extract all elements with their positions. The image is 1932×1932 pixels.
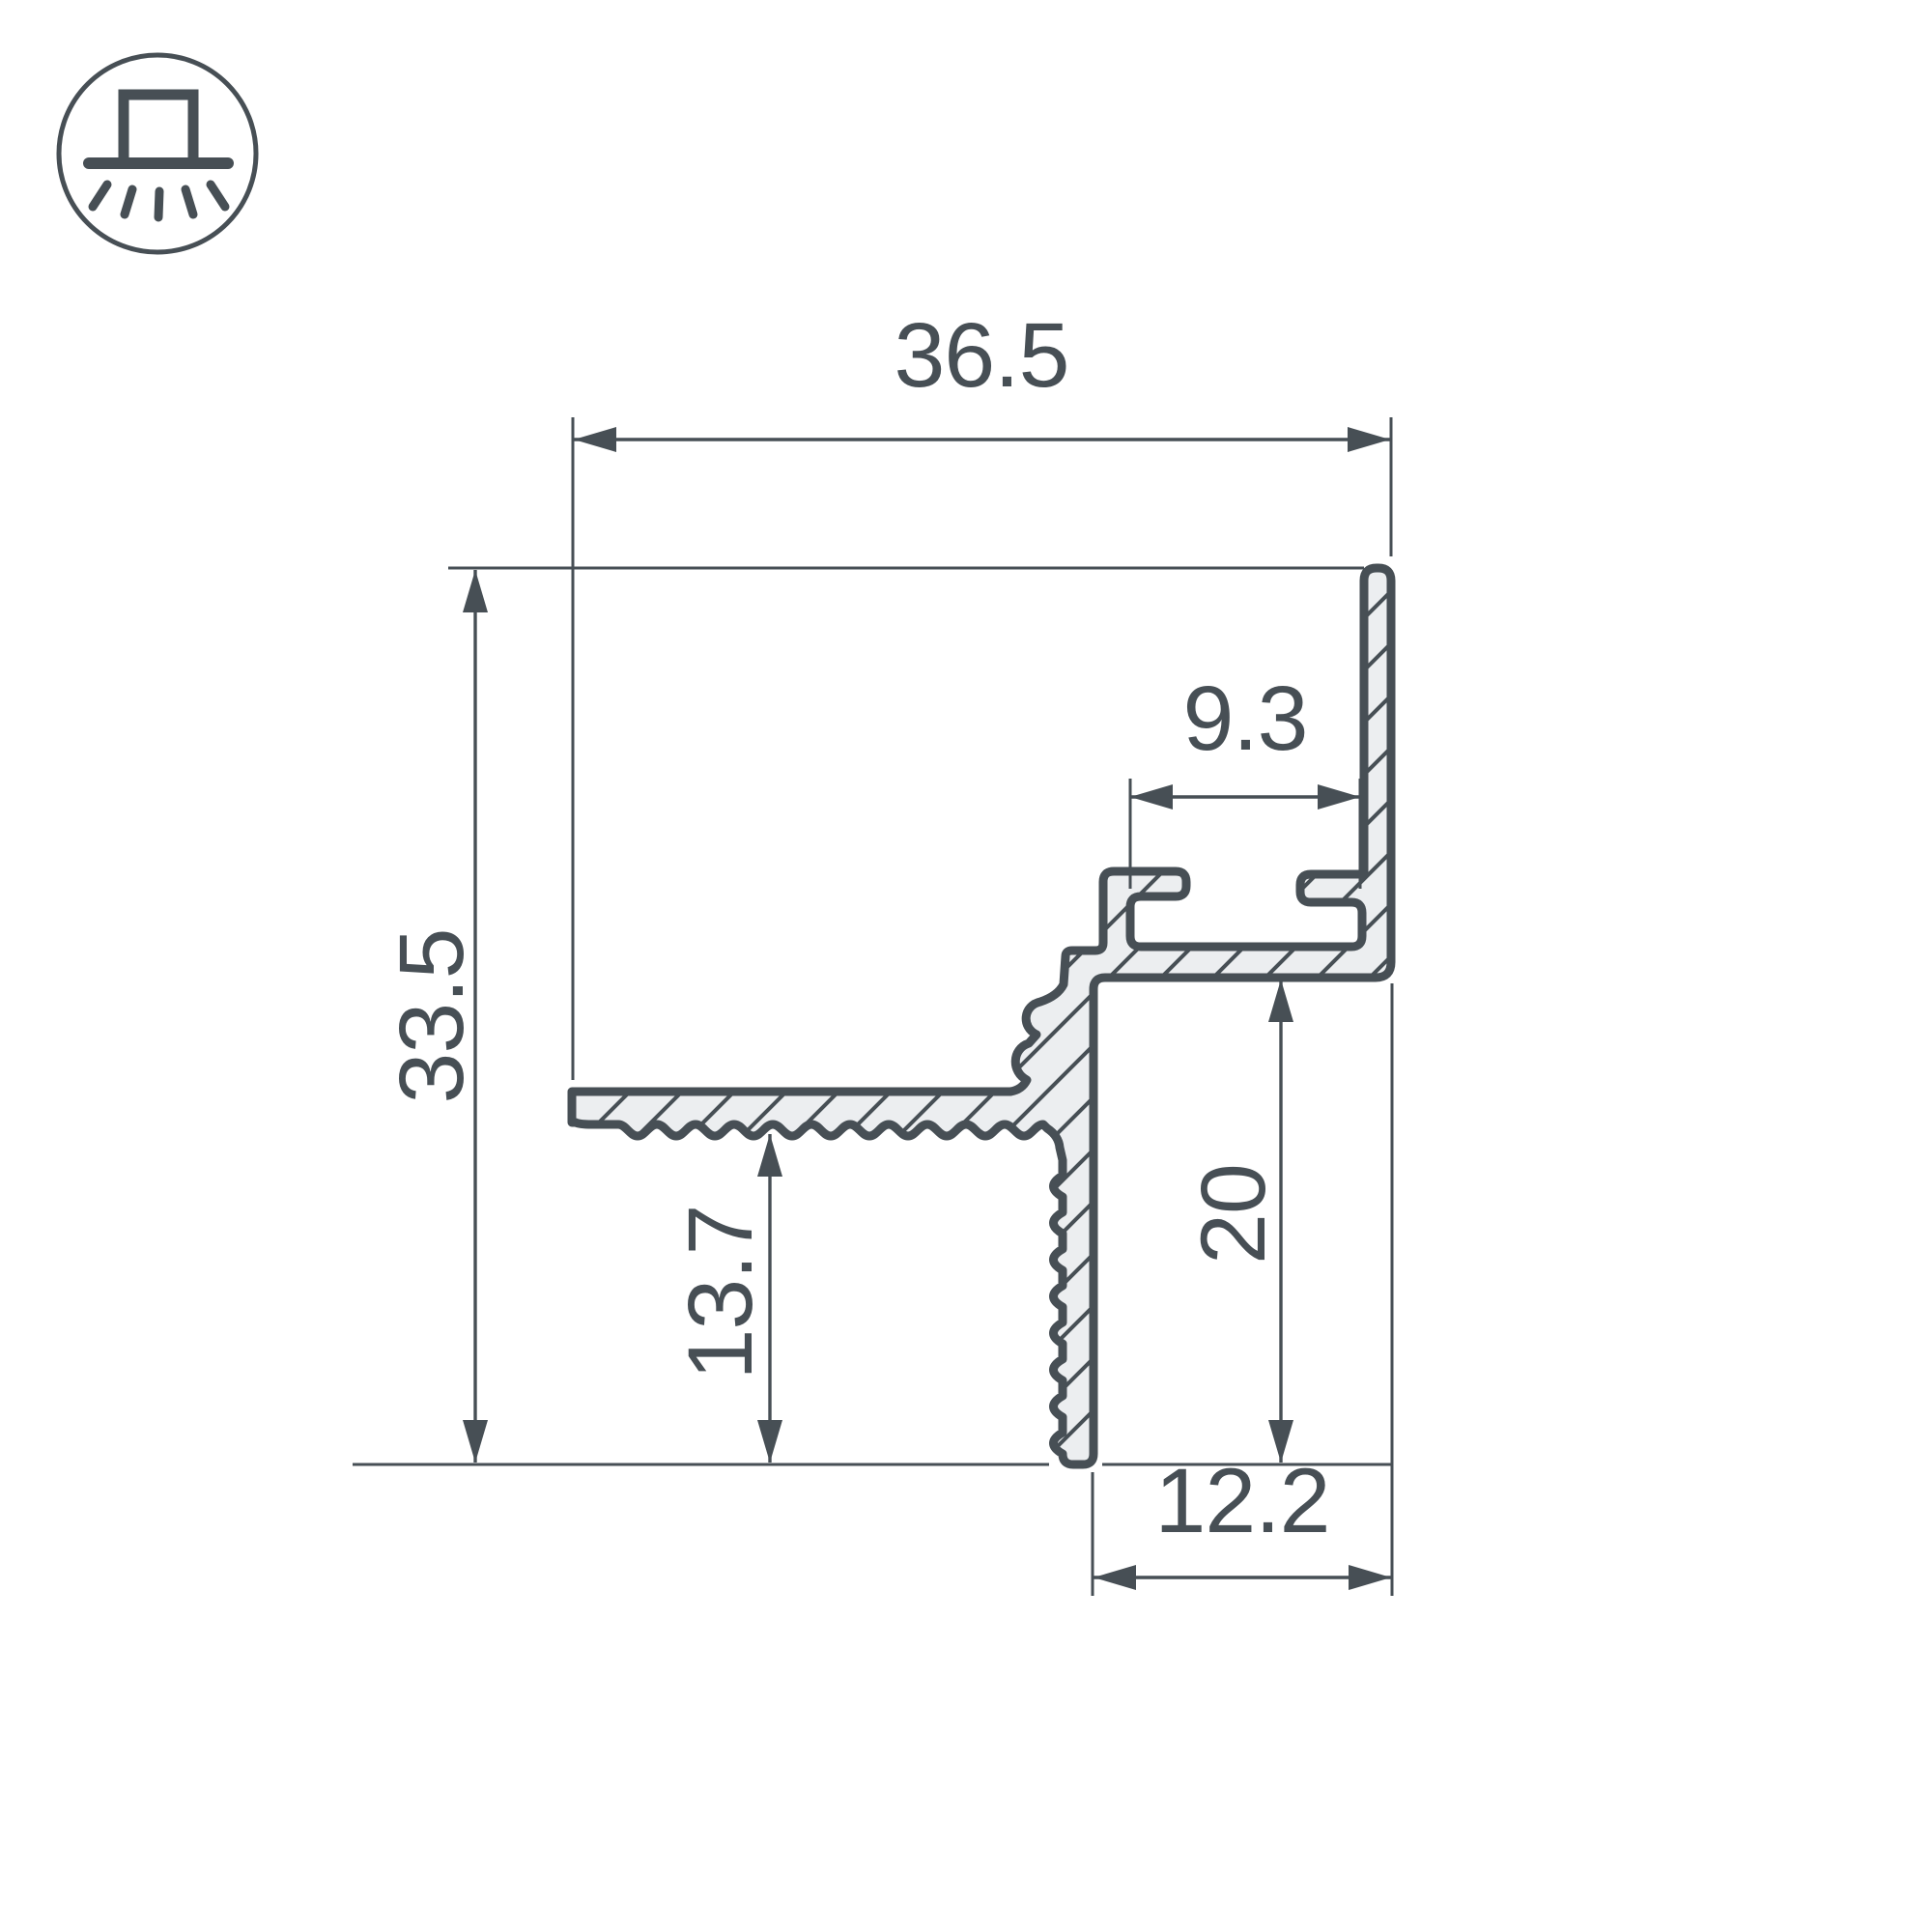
canvas-background (0, 0, 1932, 1932)
profile-technical-drawing: 36.5 33.5 9.3 20 13.7 12.2 (0, 0, 1932, 1932)
dim-label-slot-width: 9.3 (1182, 668, 1307, 770)
dim-label-top-width: 36.5 (895, 304, 1069, 407)
dim-label-bottom-width: 12.2 (1155, 1450, 1330, 1552)
dim-label-left-height: 33.5 (381, 929, 483, 1104)
dim-label-flange-drop: 13.7 (669, 1206, 772, 1380)
dim-label-right-depth: 20 (1182, 1164, 1285, 1264)
technical-drawing-page: 36.5 33.5 9.3 20 13.7 12.2 (0, 0, 1932, 1932)
